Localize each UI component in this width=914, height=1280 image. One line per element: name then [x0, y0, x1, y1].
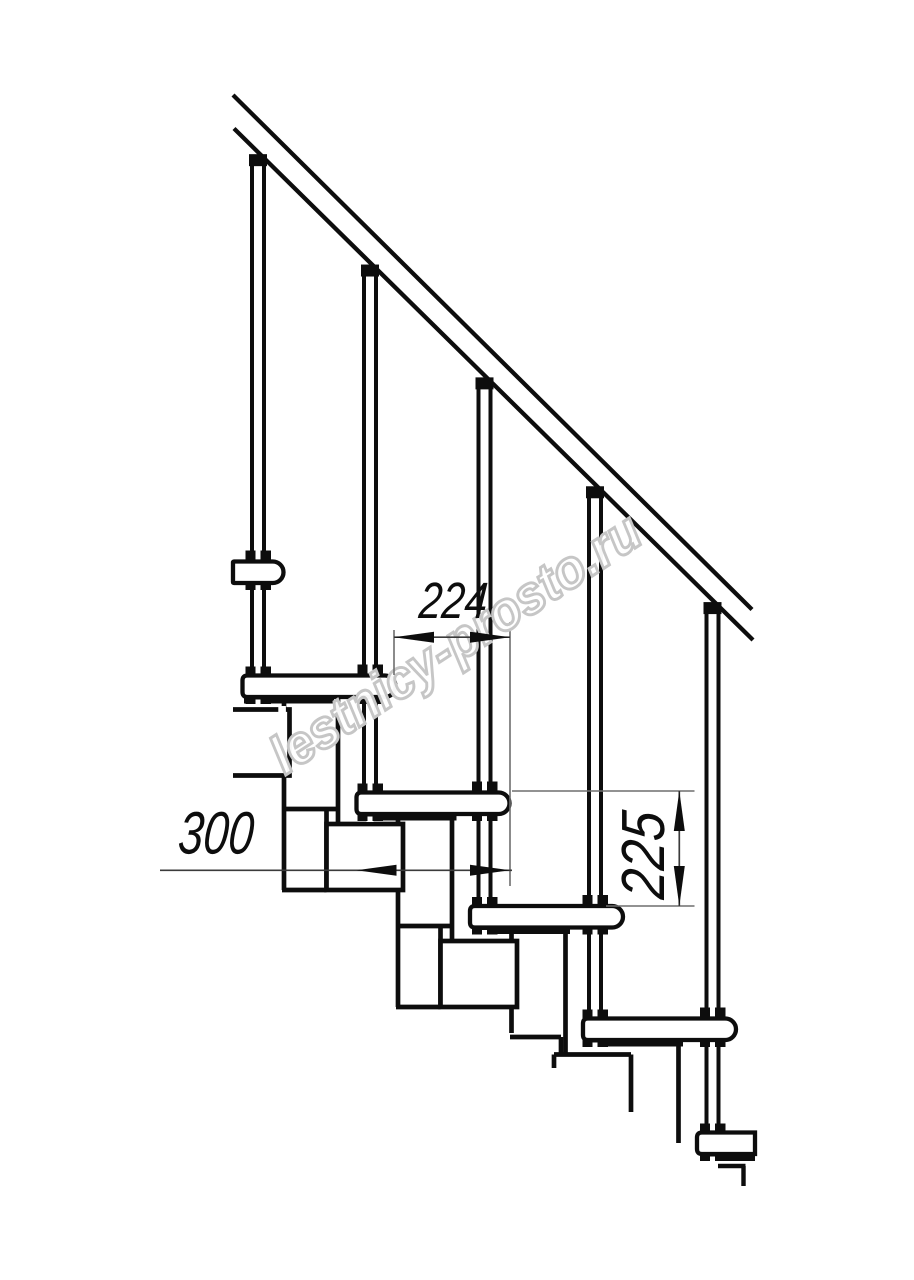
svg-text:300: 300	[176, 800, 257, 867]
svg-text:225: 225	[609, 807, 677, 902]
svg-text:224: 224	[416, 572, 490, 629]
